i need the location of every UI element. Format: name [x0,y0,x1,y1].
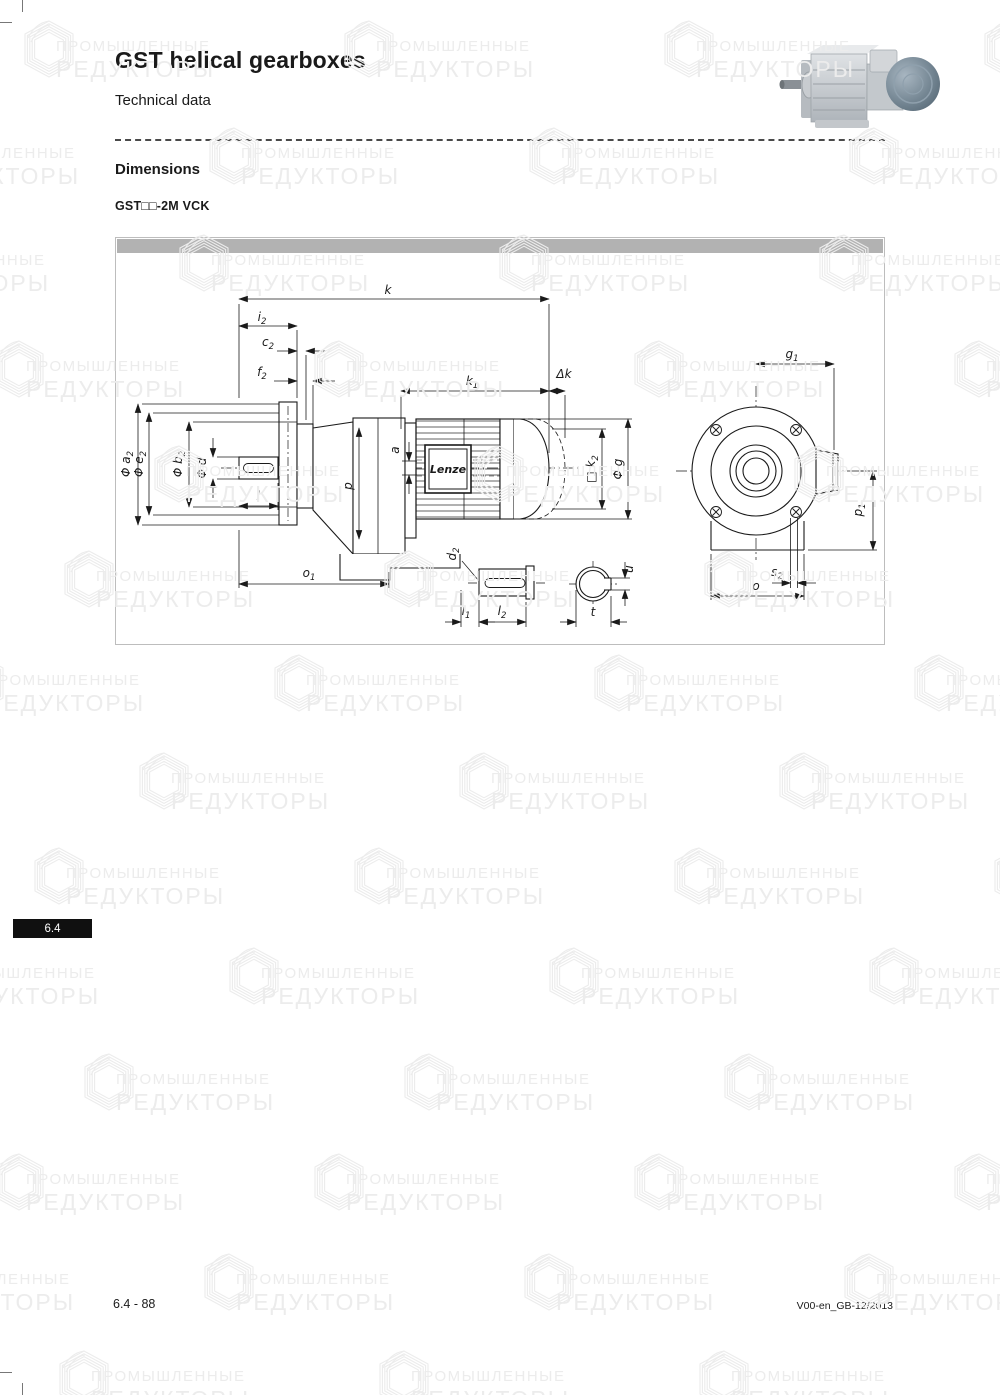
output-shaft [239,457,278,479]
svg-text:t: t [591,605,597,619]
crop-mark-top-left-v [22,0,23,12]
section-heading: Dimensions [115,161,200,178]
svg-text:Φ g: Φ g [611,458,625,479]
svg-text:Δk: Δk [555,367,572,381]
watermark: ПРОМЫШЛЕННЫЕРЕДУКТОРЫ [350,845,520,923]
watermark: ПРОМЫШЛЕННЫЕРЕДУКТОРЫ [270,652,440,730]
catalog-page: { "page": { "title": "GST helical gearbo… [0,0,1000,1395]
junction-box [816,450,838,494]
watermark: ПРОМЫШЛЕННЫЕРЕДУКТОРЫ [590,652,760,730]
watermark: ПРОМЫШЛЕННЫЕРЕДУКТОРЫ [200,1251,370,1329]
page-number: 6.4 - 88 [113,1297,155,1311]
watermark: ПРОМЫШЛЕННЫЕРЕДУКТОРЫ [310,1151,480,1229]
watermark: ПРОМЫШЛЕННЫЕРЕДУКТОРЫ [865,945,1000,1023]
watermark: ПРОМЫШЛЕННЫЕРЕДУКТОРЫ [55,1348,225,1395]
watermark: ПРОМЫШЛЕННЫЕРЕДУКТОРЫ [455,750,625,828]
svg-text:o1: o1 [303,566,316,583]
watermark: ПРОМЫШЛЕННЫЕРЕДУКТОРЫ [525,125,695,203]
crop-mark-bottom-left-v [22,1383,23,1395]
variant-label: GST□□-2M VCK [115,199,210,213]
page-subtitle: Technical data [115,92,211,109]
watermark: ПРОМЫШЛЕННЫЕРЕДУКТОРЫ [0,125,55,203]
svg-text:l2: l2 [498,604,507,621]
svg-text:k1: k1 [466,374,478,391]
watermark: ПРОМЫШЛЕННЫЕРЕДУКТОРЫ [225,945,395,1023]
watermark: ПРОМЫШЛЕННЫЕРЕДУКТОРЫ [30,845,200,923]
bell-housing [297,424,313,508]
svg-text:l: l [256,489,260,503]
motor-adapter [405,423,416,538]
watermark: ПРОМЫШЛЕННЫЕРЕДУКТОРЫ [0,1151,160,1229]
watermark: ПРОМЫШЛЕННЫЕРЕДУКТОРЫ [545,945,715,1023]
watermark: ПРОМЫШЛЕННЫЕРЕДУКТОРЫ [400,1051,570,1129]
crop-mark-bottom-left-h [0,1372,12,1373]
watermark: ПРОМЫШЛЕННЫЕРЕДУКТОРЫ [775,750,945,828]
version-code: V00-en_GB-12/2013 [700,1300,893,1312]
dimension-drawing-figure: Lenze [115,237,885,645]
svg-text:p1: p1 [851,503,868,517]
svg-text:Φ d: Φ d [195,457,209,478]
housing-foot [340,554,460,580]
svg-text:p: p [341,482,355,491]
svg-text:□ k2: □ k2 [584,455,601,483]
svg-text:s2: s2 [771,565,783,582]
svg-text:c2: c2 [262,335,274,352]
watermark: ПРОМЫШЛЕННЫЕРЕДУКТОРЫ [80,1051,250,1129]
d2-leader [462,561,479,581]
gearmotor-product-photo [773,38,943,138]
side-view: Lenze [221,402,578,580]
watermark: ПРОМЫШЛЕННЫЕРЕДУКТОРЫ [0,652,120,730]
svg-text:o: o [752,579,759,593]
watermark: ПРОМЫШЛЕННЫЕРЕДУКТОРЫ [670,845,840,923]
photo-gearbox-foot [815,120,869,128]
svg-text:g1: g1 [785,347,798,364]
watermark: ПРОМЫШЛЕННЫЕРЕДУКТОРЫ [520,1251,690,1329]
watermark: ПРОМЫШЛЕННЫЕРЕДУКТОРЫ [0,945,75,1023]
svg-text:a: a [388,446,402,453]
svg-text:f2: f2 [257,365,267,382]
figure-header-bar [117,239,883,253]
svg-text:k: k [385,283,393,297]
crop-mark-top-left-h [0,22,12,23]
motor-end-cap [514,419,549,519]
svg-text:u: u [622,565,636,573]
watermark: ПРОМЫШЛЕННЫЕРЕДУКТОРЫ [950,338,1000,416]
watermark: ПРОМЫШЛЕННЫЕРЕДУКТОРЫ [910,652,1000,730]
watermark: ПРОМЫШЛЕННЫЕРЕДУКТОРЫ [695,1348,865,1395]
watermark: ПРОМЫШЛЕННЫЕРЕДУКТОРЫ [135,750,305,828]
svg-text:i2: i2 [258,310,267,327]
watermark: ПРОМЫШЛЕННЫЕРЕДУКТОРЫ [720,1051,890,1129]
watermark: ПРОМЫШЛЕННЫЕРЕДУКТОРЫ [990,845,1000,923]
page-title: GST helical gearboxes [115,47,366,74]
watermark: ПРОМЫШЛЕННЫЕРЕДУКТОРЫ [205,125,375,203]
watermark: ПРОМЫШЛЕННЫЕРЕДУКТОРЫ [630,1151,800,1229]
watermark: ПРОМЫШЛЕННЫЕРЕДУКТОРЫ [0,1251,50,1329]
watermark: ПРОМЫШЛЕННЫЕРЕДУКТОРЫ [840,1251,1000,1329]
dashed-separator [115,139,885,141]
chapter-tab: 6.4 [13,919,92,938]
front-view [676,386,864,560]
photo-gearbox-top [807,45,879,54]
photo-gearbox-body [811,54,867,122]
brand-logo: Lenze [430,463,467,476]
watermark: ПРОМЫШЛЕННЫЕРЕДУКТОРЫ [375,1348,545,1395]
watermark: ПРОМЫШЛЕННЫЕРЕДУКТОРЫ [950,1151,1000,1229]
gear-housing [353,418,405,554]
svg-text:Φ b2: Φ b2 [171,451,188,477]
watermark: ПРОМЫШЛЕННЫЕРЕДУКТОРЫ [0,232,25,310]
svg-text:l1: l1 [462,604,471,621]
shaft-detail [462,561,548,599]
watermark: ПРОМЫШЛЕННЫЕРЕДУКТОРЫ [980,18,1000,96]
